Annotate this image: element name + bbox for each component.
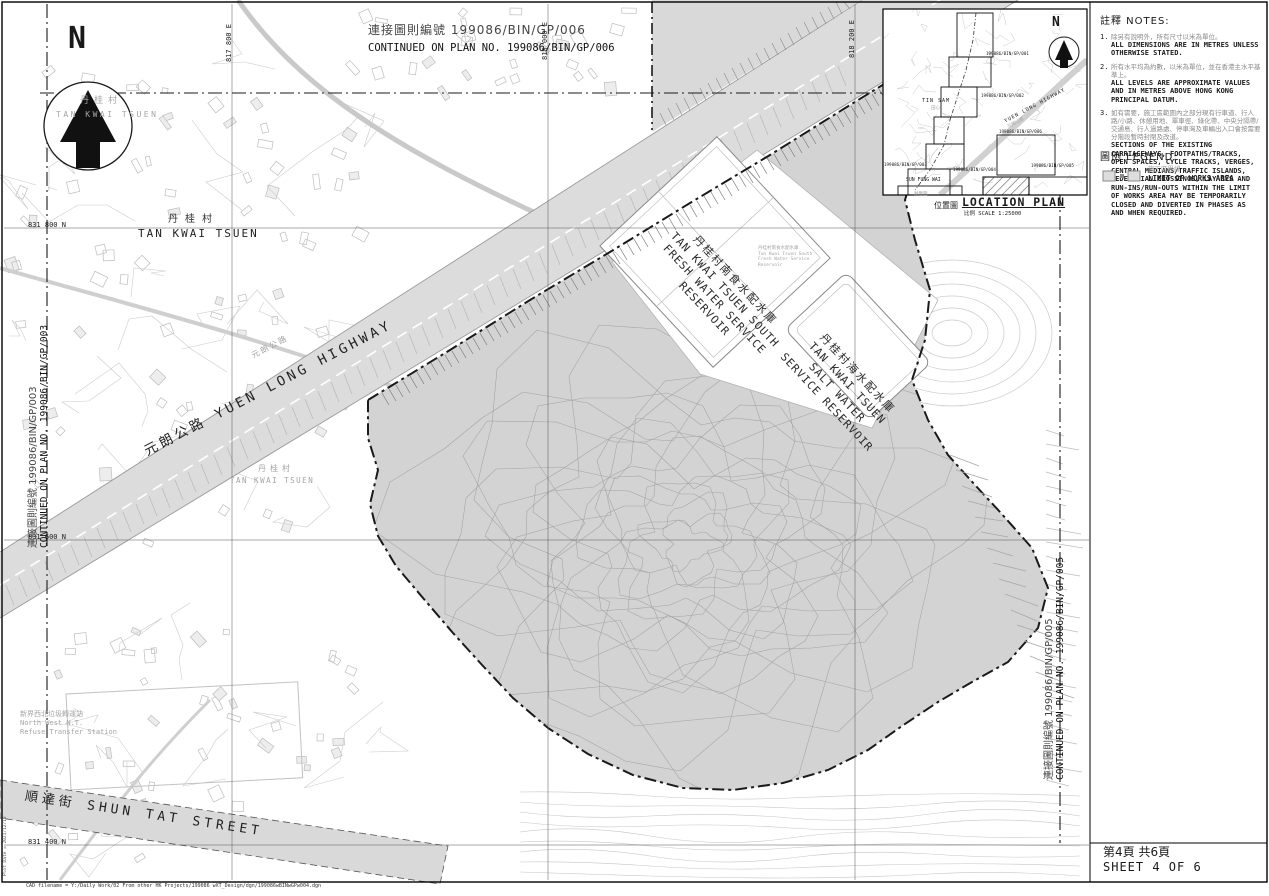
location-plan-scale: 比例 SCALE 1:25000: [964, 211, 1021, 217]
inset-tin-sam-zh: 田心: [931, 106, 940, 111]
location-plan-title-en: LOCATION PLAN: [962, 196, 1065, 209]
note-1-zh: 除另有說明外，所有尺寸以米為單位。: [1111, 33, 1262, 41]
village-label-zh: 丹桂村: [168, 214, 219, 226]
note-item-1: 1. 除另有說明外，所有尺寸以米為單位。 ALL DIMENSIONS ARE …: [1100, 33, 1262, 58]
easting-label-0: 817 800 E: [225, 24, 233, 62]
continued-left: 連接圖則編號 199086/BIN/GP/003 CONTINUED ON PL…: [28, 325, 50, 548]
continued-left-zh: 連接圖則編號 199086/BIN/GP/003: [28, 325, 40, 548]
village-label2-zh-gray: 丹桂村: [258, 464, 294, 473]
inset-sun-fung-wai-en: SUN FUNG WAI: [906, 178, 942, 184]
continued-right-en: CONTINUED ON PLAN NO. 199086/BIN/GP/005: [1056, 557, 1067, 780]
sheet-number-zh: 第4頁 共6頁: [1103, 846, 1170, 860]
inset-plan-004: 199086/BIN/GP/004: [953, 168, 996, 173]
footer-plot-date: Plot Date = 2021/12/10: [3, 816, 8, 876]
continued-top-en: CONTINUED ON PLAN NO. 199086/BIN/GP/006: [368, 42, 615, 54]
village-label-en-gray: TAN KWAI TSUEN: [56, 110, 158, 119]
north-letter: N: [68, 22, 86, 57]
legend-panel: 圖例 LEGEND: 施工區界線 LIMIT OF WORKS AREA: [1100, 152, 1178, 164]
note-2-no: 2.: [1100, 63, 1108, 71]
easting-label-2: 818 200 E: [848, 20, 856, 58]
inset-sun-fung-wai-zh: 順豐圍: [914, 192, 928, 197]
inset-north-arrow-icon: [1049, 37, 1079, 68]
note-2-en: ALL LEVELS ARE APPROXIMATE VALUES AND IN…: [1111, 79, 1262, 105]
northing-label-2: 831 400 N: [28, 838, 66, 846]
map-drawing: [0, 0, 1269, 896]
refuse-station-en2: Refuse Transfer Station: [20, 728, 117, 737]
inset-north-letter: N: [1052, 16, 1060, 31]
works-limit-symbol-icon: [1102, 168, 1142, 184]
northing-label-0: 831 800 N: [28, 221, 66, 229]
note-3-zh: 如有需要，施工區範圍內之部分現有行車道、行人路/小路、休憩用地、單車徑、綠化帶、…: [1111, 109, 1262, 141]
inset-plan-003: 199086/BIN/GP/003: [884, 163, 927, 168]
inset-tin-sam-en: TIN SAM: [922, 99, 950, 105]
village-label-en: TAN KWAI TSUEN: [138, 228, 259, 241]
inset-plan-006: 199086/BIN/GP/006: [999, 130, 1042, 135]
note-3-no: 3.: [1100, 109, 1108, 117]
notes-title: 註釋 NOTES:: [1100, 16, 1262, 28]
continued-right-zh: 連接圖則編號 199086/BIN/GP/005: [1044, 557, 1056, 780]
notes-panel: 註釋 NOTES: 1. 除另有說明外，所有尺寸以米為單位。 ALL DIMEN…: [1100, 16, 1262, 218]
inset-plan-005: 199086/BIN/GP/005: [1031, 164, 1074, 169]
inset-plan-001: 199086/BIN/GP/001: [986, 52, 1029, 57]
location-plan-inset: [876, 7, 1091, 205]
legend-title: 圖例 LEGEND:: [1100, 152, 1178, 164]
refuse-station-en1: North West N.T.: [20, 719, 117, 728]
note-2-zh: 所有水平均為約數，以米為單位，並在香港主水平基準上。: [1111, 63, 1262, 79]
note-1-en: ALL DIMENSIONS ARE IN METRES UNLESS OTHE…: [1111, 41, 1262, 58]
fresh-reservoir-small-label: 丹桂村南食水配水庫 Tan Kwai Tsuen South Fresh Wat…: [758, 246, 812, 268]
continued-top-zh: 連接圖則編號 199086/BIN/GP/006: [368, 24, 586, 38]
footer-cad-filename: CAD filename = Y:/Daily Work/02 From oth…: [26, 884, 321, 890]
fresh-small-en2: Fresh Water Service: [758, 257, 812, 263]
continued-left-en: CONTINUED ON PLAN NO. 199086/BIN/GP/003: [40, 325, 51, 548]
location-plan-title-zh: 位置圖: [934, 201, 958, 210]
inset-plan-002: 199086/BIN/GP/002: [981, 94, 1024, 99]
refuse-station-zh: 新界西北垃圾轉運站: [20, 710, 117, 719]
legend-item-en: LIMIT OF WORKS AREA: [1148, 175, 1234, 184]
drawing-sheet: N 丹桂村 TAN KWAI TSUEN 丹桂村 TAN KWAI TSUEN …: [0, 0, 1269, 896]
legend-item-zh: 施工區界線: [1148, 166, 1181, 173]
continued-right: 連接圖則編號 199086/BIN/GP/005 CONTINUED ON PL…: [1044, 557, 1066, 780]
fresh-small-en3: Reservoir: [758, 263, 812, 269]
note-1-no: 1.: [1100, 33, 1108, 41]
village-label-zh-gray: 丹桂村: [80, 96, 122, 106]
refuse-station-label: 新界西北垃圾轉運站 North West N.T. Refuse Transfe…: [20, 710, 117, 737]
village-label2-en-gray: TAN KWAI TSUEN: [230, 477, 314, 486]
sheet-number-en: SHEET 4 OF 6: [1103, 861, 1202, 875]
note-item-2: 2. 所有水平均為約數，以米為單位，並在香港主水平基準上。 ALL LEVELS…: [1100, 63, 1262, 105]
easting-label-1: 818 000 E: [541, 22, 549, 60]
northing-label-1: 831 600 N: [28, 533, 66, 541]
